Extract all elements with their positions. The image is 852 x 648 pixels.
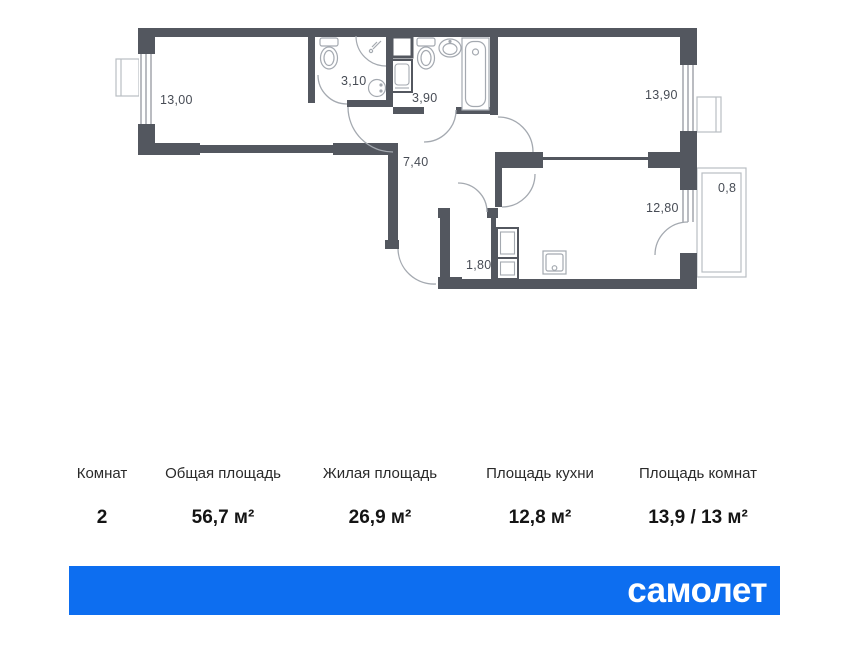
vent-shaft [392, 37, 412, 57]
summary-header: Площадь комнат [613, 466, 783, 482]
summary-header: Общая площадь [138, 466, 308, 482]
room-label-storage: 1,80 [466, 258, 492, 272]
sink-oval-icon [439, 39, 461, 57]
door-entrance [398, 249, 436, 284]
window-bay-left [116, 59, 139, 96]
floor-plan: 13,00 3,10 3,90 7,40 13,90 12,80 1,80 0,… [0, 0, 852, 340]
sink-round-icon [369, 80, 386, 97]
room-label-room-1: 13,00 [160, 93, 193, 107]
door-storage [458, 183, 487, 212]
fridge-column-icon [497, 228, 518, 279]
summary-col-rooms-area: Площадь комнат 13,9 / 13 м² [613, 466, 783, 529]
brand-logo-text: самолет [627, 573, 767, 608]
room-label-bathroom-2: 3,90 [412, 91, 438, 105]
window-left [139, 54, 154, 124]
balcony-door-glazing [681, 190, 696, 222]
toilet-icon [320, 38, 338, 69]
summary-col-total-area: Общая площадь 56,7 м² [138, 466, 308, 529]
bathtub-icon [462, 38, 489, 110]
door-room2 [498, 117, 533, 152]
washing-machine-icon [392, 60, 412, 92]
room-label-kitchen: 12,80 [646, 201, 679, 215]
shower-icon [356, 36, 386, 66]
summary-value: 13,9 / 13 м² [613, 507, 783, 529]
summary-header: Жилая площадь [295, 466, 465, 482]
toilet-icon-2 [417, 38, 435, 69]
room-label-balcony: 0,8 [718, 181, 736, 195]
summary-col-kitchen-area: Площадь кухни 12,8 м² [455, 466, 625, 529]
room-label-hallway: 7,40 [403, 155, 429, 169]
brand-banner: самолет [69, 566, 780, 615]
door-balcony [655, 222, 688, 255]
summary-header: Площадь кухни [455, 466, 625, 482]
window-bay-right [697, 97, 721, 132]
door-kitchen [502, 174, 535, 207]
kitchen-sink-icon [543, 251, 566, 274]
summary-value: 56,7 м² [138, 507, 308, 529]
summary-col-living-area: Жилая площадь 26,9 м² [295, 466, 465, 529]
window-right [681, 65, 696, 131]
listing-card: 13,00 3,10 3,90 7,40 13,90 12,80 1,80 0,… [0, 0, 852, 648]
room-label-room-2: 13,90 [645, 88, 678, 102]
door-bath2 [424, 110, 456, 142]
summary-value: 26,9 м² [295, 507, 465, 529]
room-label-bathroom-1: 3,10 [341, 74, 367, 88]
summary-value: 12,8 м² [455, 507, 625, 529]
